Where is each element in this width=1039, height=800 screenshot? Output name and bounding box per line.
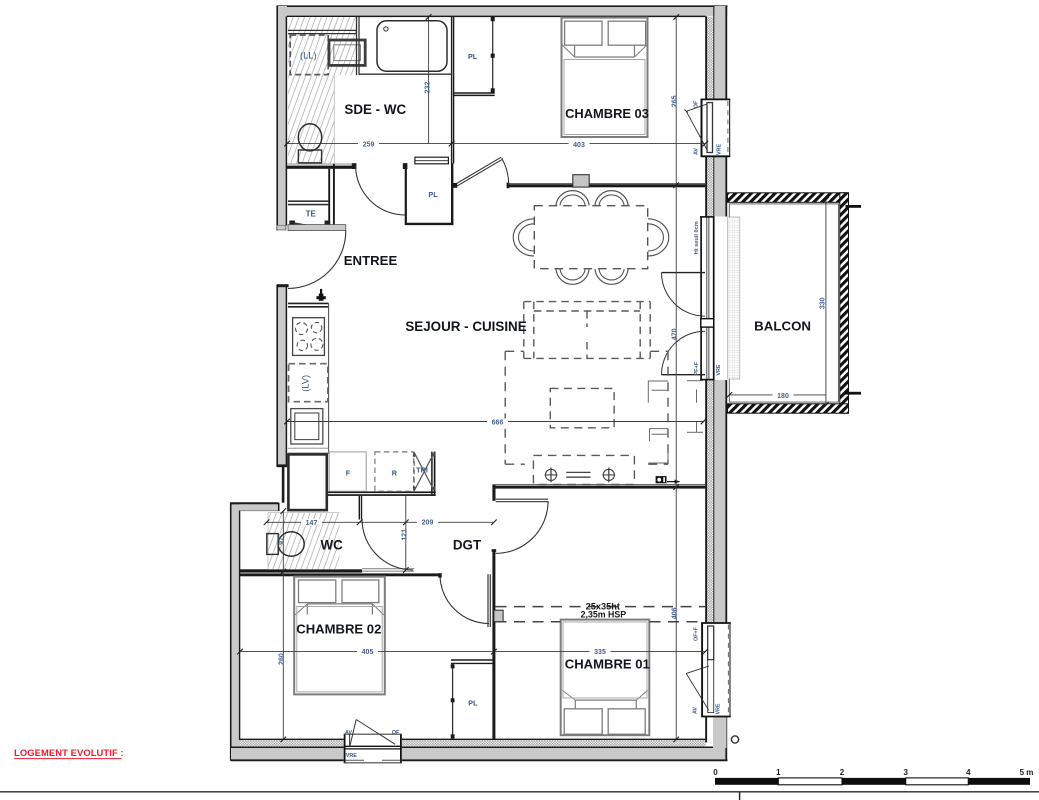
svg-text:SEJOUR - CUISINE: SEJOUR - CUISINE	[405, 319, 526, 334]
svg-text:2: 2	[840, 768, 845, 777]
svg-text:OF: OF	[392, 730, 400, 736]
svg-text:CHAMBRE 02: CHAMBRE 02	[296, 622, 381, 637]
svg-text:265: 265	[671, 95, 678, 107]
svg-text:SDE - WC: SDE - WC	[344, 102, 406, 117]
svg-text:209: 209	[422, 519, 434, 526]
svg-text:ENTREE: ENTREE	[344, 253, 398, 268]
svg-text:1: 1	[776, 768, 781, 777]
svg-text:VRE: VRE	[346, 753, 357, 759]
svg-text:(LV): (LV)	[301, 375, 311, 392]
svg-text:97: 97	[279, 537, 286, 545]
svg-text:0: 0	[713, 768, 718, 777]
svg-text:5 m: 5 m	[1020, 768, 1034, 777]
svg-text:F: F	[346, 468, 351, 477]
svg-text:121: 121	[401, 529, 408, 541]
svg-text:OF+F: OF+F	[694, 626, 700, 641]
svg-text:OF: OF	[693, 100, 699, 108]
svg-text:LOGEMENT EVOLUTIF :: LOGEMENT EVOLUTIF :	[14, 747, 124, 758]
svg-text:403: 403	[573, 142, 585, 149]
svg-text:CHAMBRE 01: CHAMBRE 01	[565, 657, 650, 672]
svg-text:330: 330	[820, 297, 827, 309]
svg-text:406: 406	[671, 607, 678, 619]
svg-text:335: 335	[594, 649, 606, 656]
svg-text:2,35m HSP: 2,35m HSP	[581, 609, 627, 619]
svg-text:VRE: VRE	[716, 144, 722, 155]
svg-text:R: R	[392, 469, 398, 478]
svg-text:TRI: TRI	[416, 465, 428, 474]
svg-text:WC: WC	[321, 538, 344, 553]
svg-text:180: 180	[777, 393, 789, 400]
svg-text:4: 4	[966, 768, 971, 777]
svg-text:259: 259	[363, 141, 375, 148]
svg-text:Ht seuil 0cm: Ht seuil 0cm	[694, 221, 700, 254]
svg-text:PF+F: PF+F	[694, 361, 700, 375]
svg-text:VRE: VRE	[715, 703, 721, 714]
svg-text:PL: PL	[428, 190, 438, 199]
svg-text:CHAMBRE 03: CHAMBRE 03	[565, 106, 649, 121]
svg-text:BALCON: BALCON	[754, 318, 811, 333]
svg-text:DGT: DGT	[453, 538, 482, 553]
svg-text:VRE: VRE	[716, 364, 722, 375]
svg-text:405: 405	[362, 649, 374, 656]
svg-text:232: 232	[424, 82, 431, 94]
svg-text:470: 470	[671, 328, 678, 340]
svg-text:PL: PL	[468, 699, 478, 708]
svg-text:TE: TE	[306, 210, 317, 219]
svg-text:3: 3	[903, 768, 908, 777]
svg-text:PL: PL	[468, 52, 478, 61]
svg-text:AV: AV	[345, 730, 352, 736]
svg-text:147: 147	[306, 520, 318, 527]
svg-text:AV: AV	[694, 148, 700, 155]
svg-text:260: 260	[279, 653, 286, 665]
svg-text:AV: AV	[693, 707, 699, 714]
svg-text:(LL): (LL)	[300, 50, 317, 60]
svg-text:666: 666	[492, 419, 504, 426]
